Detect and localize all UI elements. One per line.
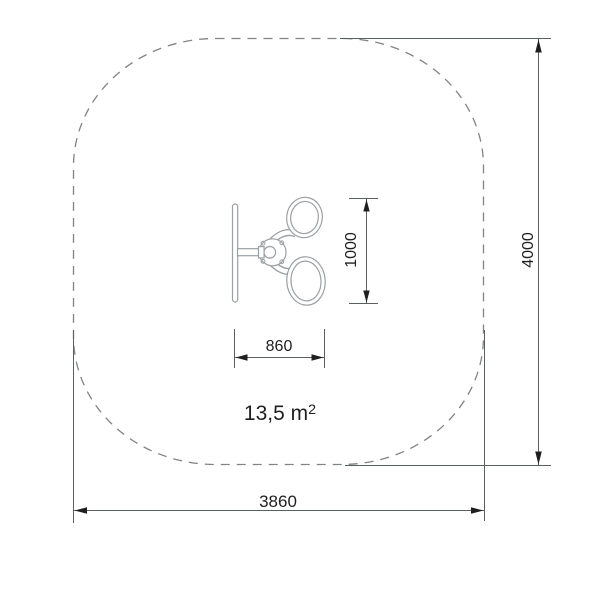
dimension-label-3860: 3860 (238, 492, 318, 512)
area-superscript: 2 (308, 402, 316, 418)
arm-bracket (259, 247, 265, 258)
arrow-up-icon (363, 200, 369, 212)
arrow-down-icon (363, 291, 369, 303)
area-value: 13,5 m (244, 402, 308, 425)
dimension-label-4000: 4000 (519, 210, 539, 290)
dimension-label-1000: 1000 (342, 210, 362, 290)
equipment-top-view (233, 195, 327, 306)
technical-drawing-canvas: 4000 3860 1000 860 13,5 m2 (0, 0, 600, 590)
centre-post (264, 247, 276, 259)
dimension-label-860: 860 (239, 337, 319, 357)
area-label: 13,5 m2 (199, 400, 361, 428)
arrow-left-icon (75, 507, 88, 513)
arrow-right-icon (471, 507, 484, 513)
arrow-up-icon (535, 40, 542, 53)
ring-seat-bottom (285, 256, 327, 307)
support-arm (238, 249, 260, 256)
arrow-down-icon (535, 452, 542, 465)
